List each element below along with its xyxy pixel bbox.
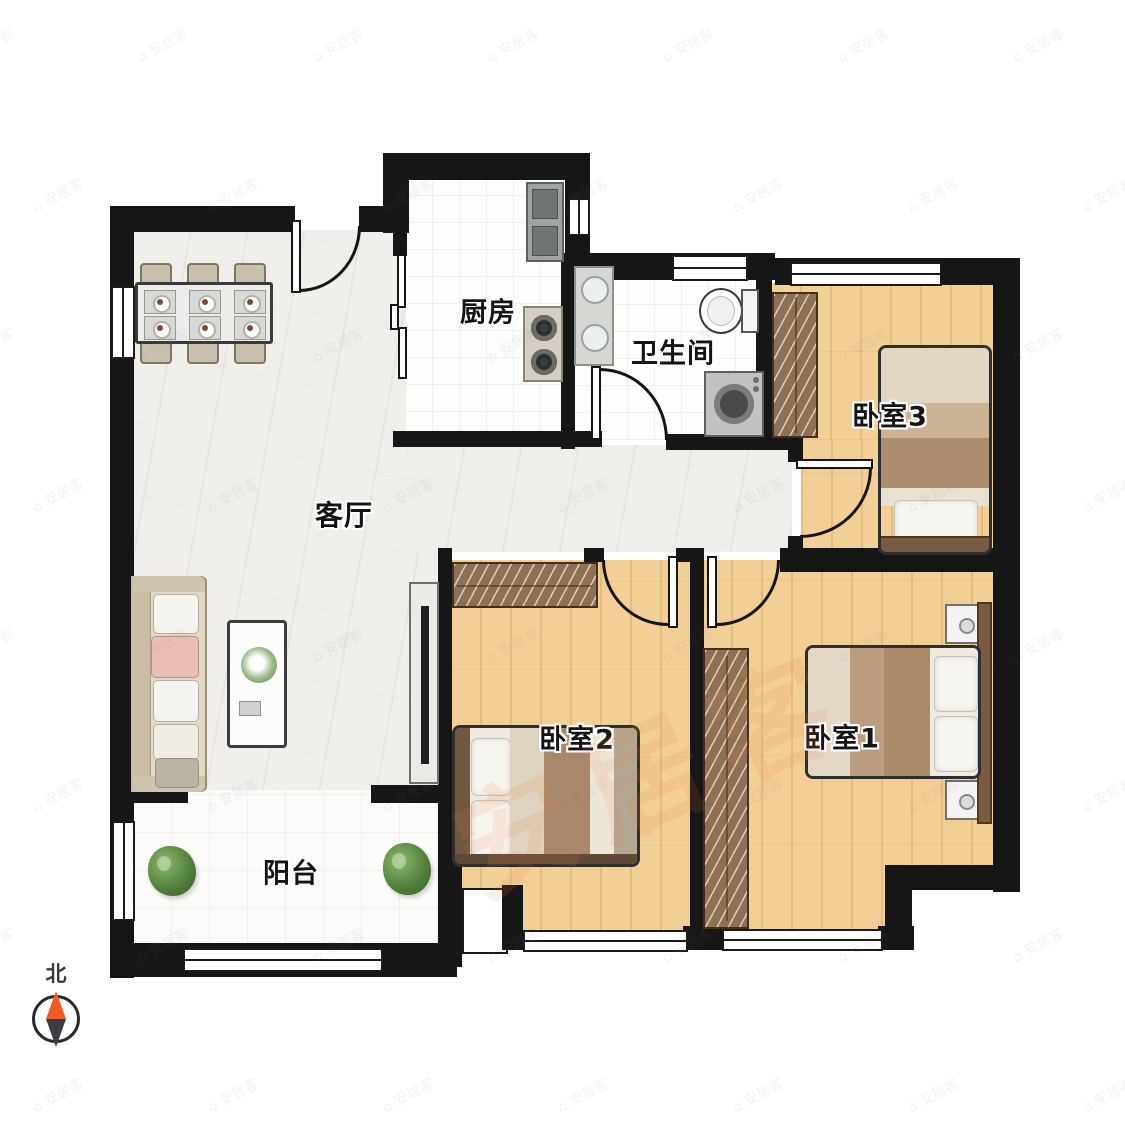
balcony-plant-right [383, 843, 431, 895]
kitchen-sliding-door-panel-1 [397, 254, 406, 308]
compass: 北 [24, 958, 94, 1058]
watermark-tile: ⌂ 安居客 [904, 173, 962, 217]
watermark-tile: ⌂ 安居客 [379, 1073, 437, 1117]
bathroom-top-window [672, 255, 748, 281]
compass-needle-north [46, 991, 66, 1019]
sofa [131, 576, 207, 792]
wall-kitchen-bath-divider [561, 255, 575, 449]
balcony-left-window [112, 821, 135, 921]
coffee-table [227, 620, 287, 748]
floorplan: 厨房 卫生间 客厅 卧室3 卧室2 卧室1 阳台 北 安居客 ⌂ 安居客⌂ 安居… [0, 0, 1125, 1125]
watermark-tile: ⌂ 安居客 [0, 23, 17, 67]
watermark-tile: ⌂ 安居客 [29, 473, 87, 517]
watermark-tile: ⌂ 安居客 [0, 623, 17, 667]
kitchen-label: 厨房 [460, 291, 516, 330]
balcony-label: 阳台 [263, 852, 319, 891]
bedroom3-bed [878, 345, 992, 555]
watermark-tile: ⌂ 安居客 [0, 923, 17, 967]
bedroom1-door-leaf [707, 556, 717, 628]
bedroom2-door-leaf [668, 556, 678, 628]
kitchen-sliding-door-panel-3 [398, 327, 407, 379]
watermark-tile: ⌂ 安居客 [1009, 23, 1067, 67]
watermark-tile: ⌂ 安居客 [0, 323, 17, 367]
watermark-tile: ⌂ 安居客 [1079, 473, 1125, 517]
bathroom-vanity [574, 266, 614, 366]
wall-bedroom3-door-stub-top [788, 434, 803, 462]
watermark-tile: ⌂ 安居客 [1079, 1073, 1125, 1117]
wall-kitchen-bottom [393, 431, 602, 447]
bathroom-washing-machine [704, 371, 764, 437]
watermark-tile: ⌂ 安居客 [204, 1073, 262, 1117]
watermark-tile: ⌂ 安居客 [659, 23, 717, 67]
bedroom3-top-window [790, 262, 942, 286]
watermark-tile: ⌂ 安居客 [309, 23, 367, 67]
watermark-tile: ⌂ 安居客 [484, 23, 542, 67]
watermark-tile: ⌂ 安居客 [29, 1073, 87, 1117]
living-room-label: 客厅 [315, 494, 373, 534]
tv-console [409, 582, 439, 784]
dining-table [135, 282, 273, 344]
kitchen-sink-counter [526, 182, 564, 262]
watermark-tile: ⌂ 安居客 [134, 23, 192, 67]
balcony-plant-left [148, 846, 196, 896]
living-left-window [111, 286, 135, 359]
watermark-tile: ⌂ 安居客 [1009, 923, 1067, 967]
balcony-bottom-window [183, 948, 383, 972]
compass-needle-south [46, 1019, 66, 1047]
watermark-tile: ⌂ 安居客 [1079, 173, 1125, 217]
watermark-tile: ⌂ 安居客 [729, 1073, 787, 1117]
wall-kitchen-left-lower [393, 226, 407, 256]
watermark-tile: ⌂ 安居客 [554, 1073, 612, 1117]
wall-hall-seg-left [584, 548, 604, 562]
bedroom2-wardrobe [452, 562, 598, 608]
watermark-tile: ⌂ 安居客 [1079, 773, 1125, 817]
tv [421, 606, 429, 764]
bedroom3-wardrobe [772, 292, 818, 438]
wall-top-left [110, 206, 295, 232]
watermark-tile: ⌂ 安居客 [729, 173, 787, 217]
watermark-tile: ⌂ 安居客 [904, 1073, 962, 1117]
watermark-tile: ⌂ 安居客 [29, 773, 87, 817]
watermark-tile: ⌂ 安居客 [834, 23, 892, 67]
bedroom3-label: 卧室3 [852, 395, 928, 434]
watermark-tile: ⌂ 安居客 [29, 173, 87, 217]
compass-north-label: 北 [24, 958, 88, 988]
